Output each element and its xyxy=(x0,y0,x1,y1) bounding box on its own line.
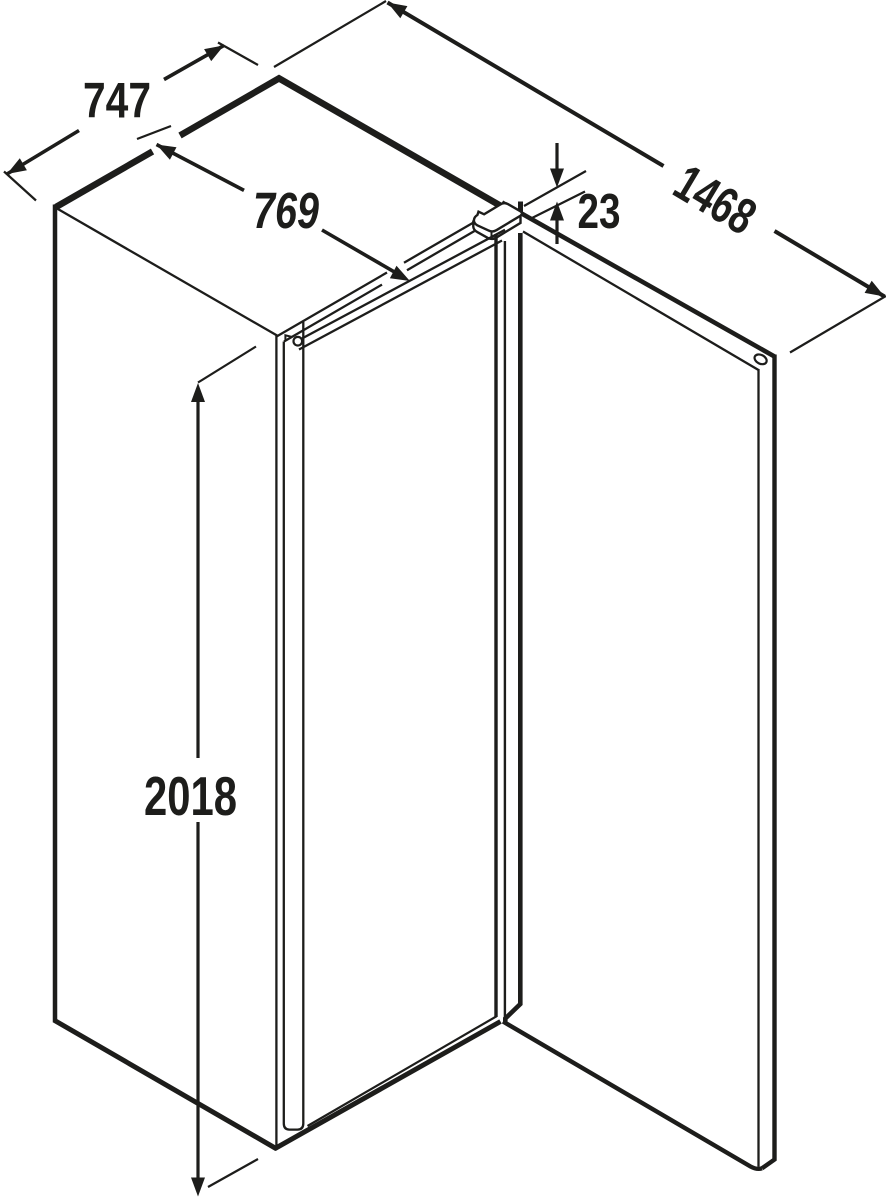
svg-text:747: 747 xyxy=(83,72,151,129)
svg-text:2018: 2018 xyxy=(144,765,237,827)
svg-text:769: 769 xyxy=(253,182,319,239)
svg-text:23: 23 xyxy=(578,184,621,239)
